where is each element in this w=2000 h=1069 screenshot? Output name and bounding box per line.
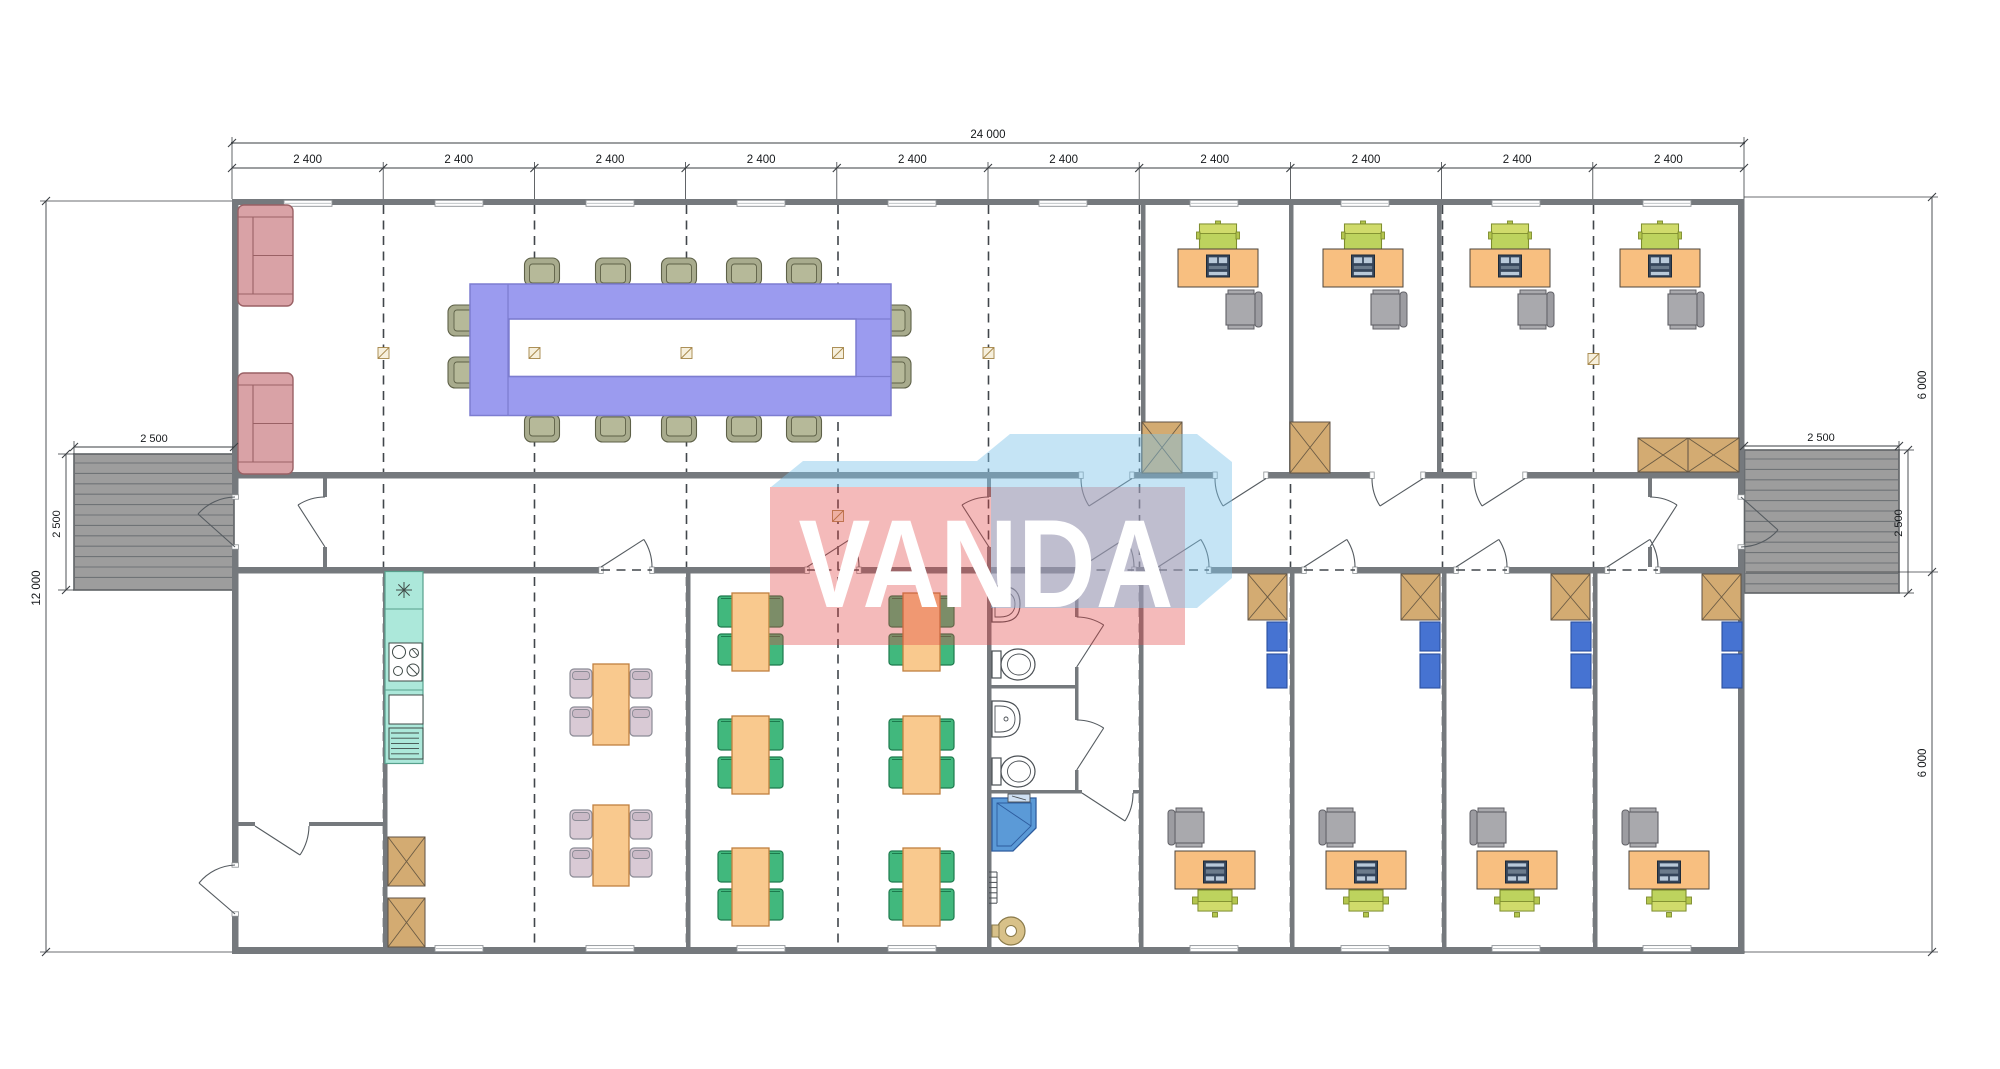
svg-text:2 400: 2 400 xyxy=(1654,154,1683,166)
svg-text:2 500: 2 500 xyxy=(51,510,63,538)
svg-text:2 400: 2 400 xyxy=(1049,154,1078,166)
svg-text:2 500: 2 500 xyxy=(1807,432,1835,444)
svg-text:2 400: 2 400 xyxy=(596,154,625,166)
svg-text:2 400: 2 400 xyxy=(747,154,776,166)
svg-text:2 500: 2 500 xyxy=(140,433,168,445)
svg-text:6 000: 6 000 xyxy=(1917,371,1929,400)
svg-text:6 000: 6 000 xyxy=(1917,749,1929,778)
svg-text:2 400: 2 400 xyxy=(1503,154,1532,166)
svg-text:12 000: 12 000 xyxy=(31,570,43,605)
svg-text:2 400: 2 400 xyxy=(293,154,322,166)
svg-text:2 400: 2 400 xyxy=(898,154,927,166)
svg-text:2 400: 2 400 xyxy=(444,154,473,166)
svg-text:24 000: 24 000 xyxy=(970,129,1005,141)
svg-text:2 400: 2 400 xyxy=(1352,154,1381,166)
svg-text:VANDA: VANDA xyxy=(799,495,1174,634)
svg-text:2 500: 2 500 xyxy=(1893,509,1905,537)
svg-text:2 400: 2 400 xyxy=(1200,154,1229,166)
